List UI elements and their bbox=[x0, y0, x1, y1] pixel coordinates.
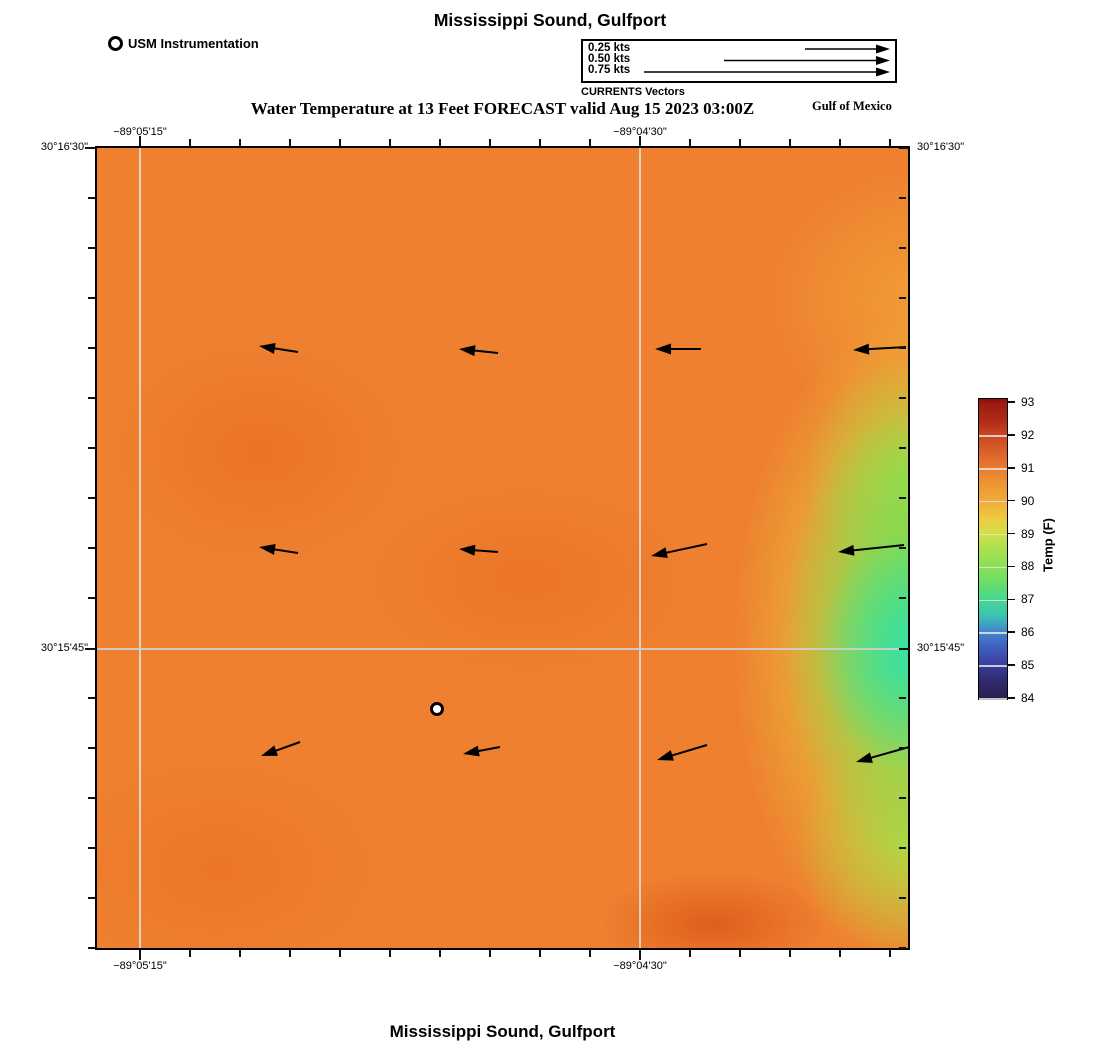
y-tick-left bbox=[88, 897, 95, 899]
station-marker-icon bbox=[430, 702, 444, 716]
current-arrow-4-shaft bbox=[273, 549, 298, 553]
colorbar-tick bbox=[1008, 500, 1015, 502]
temperature-map bbox=[95, 146, 910, 950]
current-arrow-2-head bbox=[655, 344, 671, 355]
x-tick-top bbox=[189, 139, 191, 146]
y-axis-label-right: 30°16'30" bbox=[917, 141, 964, 153]
x-tick-bottom bbox=[889, 950, 891, 957]
colorbar-tick-label: 89 bbox=[1021, 527, 1034, 541]
x-tick-bottom bbox=[839, 950, 841, 957]
x-tick-bottom bbox=[239, 950, 241, 957]
x-tick-bottom bbox=[139, 950, 141, 960]
y-tick-left bbox=[88, 197, 95, 199]
current-arrow-10-shaft bbox=[670, 745, 707, 756]
x-tick-top bbox=[239, 139, 241, 146]
colorbar-tick bbox=[1008, 697, 1015, 699]
current-arrow-1-shaft bbox=[473, 350, 498, 353]
colorbar-gridline bbox=[979, 567, 1007, 569]
current-arrow-1-head bbox=[459, 345, 475, 356]
colorbar-tick-label: 92 bbox=[1021, 428, 1034, 442]
current-arrow-11-shaft bbox=[869, 747, 908, 758]
colorbar-gridline bbox=[979, 665, 1007, 667]
x-tick-bottom bbox=[589, 950, 591, 957]
colorbar-tick bbox=[1008, 566, 1015, 568]
x-tick-bottom bbox=[789, 950, 791, 957]
colorbar-tick-label: 91 bbox=[1021, 461, 1034, 475]
colorbar-tick bbox=[1008, 434, 1015, 436]
colorbar-tick-label: 88 bbox=[1021, 559, 1034, 573]
y-tick-left bbox=[88, 497, 95, 499]
y-axis-label-left: 30°15'45" bbox=[28, 642, 88, 654]
x-axis-label-bottom: −89°04'30" bbox=[613, 960, 667, 972]
current-arrow-11-head bbox=[856, 752, 873, 763]
x-tick-bottom bbox=[389, 950, 391, 957]
current-arrow-7-head bbox=[838, 545, 854, 556]
x-tick-top bbox=[289, 139, 291, 146]
x-tick-top bbox=[589, 139, 591, 146]
x-tick-bottom bbox=[439, 950, 441, 957]
x-tick-top bbox=[489, 139, 491, 146]
current-arrow-5-head bbox=[459, 545, 475, 556]
x-tick-bottom bbox=[539, 950, 541, 957]
x-tick-bottom bbox=[489, 950, 491, 957]
x-tick-top bbox=[789, 139, 791, 146]
currents-caption: CURRENTS Vectors bbox=[581, 86, 685, 98]
x-tick-top bbox=[889, 139, 891, 146]
colorbar-tick-label: 85 bbox=[1021, 658, 1034, 672]
x-axis-label-top: −89°04'30" bbox=[613, 126, 667, 138]
x-tick-bottom bbox=[739, 950, 741, 957]
y-tick-left bbox=[88, 747, 95, 749]
y-tick-left bbox=[88, 247, 95, 249]
y-tick-left bbox=[88, 697, 95, 699]
y-axis-label-left: 30°16'30" bbox=[28, 141, 88, 153]
x-tick-top bbox=[689, 139, 691, 146]
x-tick-top bbox=[739, 139, 741, 146]
colorbar-gridline bbox=[979, 632, 1007, 634]
current-arrow-6-head bbox=[651, 547, 668, 558]
x-tick-top bbox=[539, 139, 541, 146]
colorbar-tick bbox=[1008, 664, 1015, 666]
y-tick-left bbox=[88, 547, 95, 549]
colorbar-gridline bbox=[979, 698, 1007, 700]
figure-canvas: Mississippi Sound, Gulfport USM Instrume… bbox=[0, 0, 1100, 1050]
y-tick-left bbox=[88, 347, 95, 349]
current-arrow-10-head bbox=[657, 750, 674, 761]
station-circle-icon bbox=[108, 36, 123, 51]
current-arrow-6-shaft bbox=[665, 544, 707, 553]
station-legend-label: USM Instrumentation bbox=[128, 36, 259, 51]
legend-arrow-2-head bbox=[876, 68, 890, 77]
current-arrow-8-head bbox=[261, 745, 278, 756]
current-arrow-9-head bbox=[463, 746, 480, 757]
y-tick-left bbox=[88, 597, 95, 599]
colorbar-tick bbox=[1008, 401, 1015, 403]
forecast-title: Water Temperature at 13 Feet FORECAST va… bbox=[97, 99, 908, 119]
x-tick-bottom bbox=[289, 950, 291, 957]
x-tick-bottom bbox=[189, 950, 191, 957]
legend-arrow-1-head bbox=[876, 56, 890, 65]
colorbar-tick-label: 84 bbox=[1021, 691, 1034, 705]
colorbar-tick-label: 87 bbox=[1021, 592, 1034, 606]
station-legend: USM Instrumentation bbox=[108, 36, 259, 51]
colorbar-tick bbox=[1008, 533, 1015, 535]
colorbar-gridline bbox=[979, 534, 1007, 536]
x-tick-bottom bbox=[639, 950, 641, 960]
current-arrow-9-shaft bbox=[477, 747, 500, 751]
y-tick-left bbox=[88, 947, 95, 949]
y-axis-label-right: 30°15'45" bbox=[917, 642, 964, 654]
colorbar-gridline bbox=[979, 600, 1007, 602]
vector-legend-rows: 0.25 kts0.50 kts0.75 kts bbox=[583, 41, 895, 81]
current-arrow-4-head bbox=[259, 544, 276, 555]
colorbar-tick-label: 90 bbox=[1021, 494, 1034, 508]
current-arrow-0-head bbox=[259, 343, 276, 354]
current-arrow-5-shaft bbox=[473, 550, 498, 552]
colorbar-tick-label: 86 bbox=[1021, 625, 1034, 639]
x-tick-top bbox=[439, 139, 441, 146]
colorbar-tick bbox=[1008, 599, 1015, 601]
colorbar-gridline bbox=[979, 468, 1007, 470]
x-tick-bottom bbox=[689, 950, 691, 957]
current-arrow-3-head bbox=[853, 344, 869, 355]
colorbar-title: Temp (F) bbox=[1041, 518, 1056, 572]
y-tick-left bbox=[88, 797, 95, 799]
current-arrow-8-shaft bbox=[274, 742, 300, 751]
colorbar-gridline bbox=[979, 435, 1007, 437]
colorbar-gridline bbox=[979, 501, 1007, 503]
legend-arrow-0-head bbox=[876, 45, 890, 54]
x-tick-top bbox=[839, 139, 841, 146]
y-tick-left bbox=[88, 397, 95, 399]
current-vector-legend-box: 0.25 kts0.50 kts0.75 kts bbox=[581, 39, 897, 83]
current-arrow-7-shaft bbox=[852, 545, 904, 551]
colorbar-tick bbox=[1008, 467, 1015, 469]
current-arrow-3-shaft bbox=[867, 347, 906, 349]
gulf-of-mexico-label: Gulf of Mexico bbox=[812, 99, 892, 114]
page-title: Mississippi Sound, Gulfport bbox=[0, 10, 1100, 31]
x-tick-bottom bbox=[339, 950, 341, 957]
colorbar bbox=[978, 398, 1008, 700]
colorbar-tick-label: 93 bbox=[1021, 395, 1034, 409]
y-tick-left bbox=[88, 297, 95, 299]
current-arrow-0-shaft bbox=[273, 348, 298, 352]
x-tick-top bbox=[339, 139, 341, 146]
colorbar-tick bbox=[1008, 631, 1015, 633]
vector-speed-label: 0.75 kts bbox=[588, 65, 630, 76]
x-axis-label-top: −89°05'15" bbox=[113, 126, 167, 138]
current-arrows-layer bbox=[97, 148, 908, 948]
y-tick-left bbox=[88, 447, 95, 449]
x-tick-top bbox=[389, 139, 391, 146]
footer-title: Mississippi Sound, Gulfport bbox=[97, 1022, 908, 1042]
x-axis-label-bottom: −89°05'15" bbox=[113, 960, 167, 972]
y-tick-left bbox=[88, 847, 95, 849]
